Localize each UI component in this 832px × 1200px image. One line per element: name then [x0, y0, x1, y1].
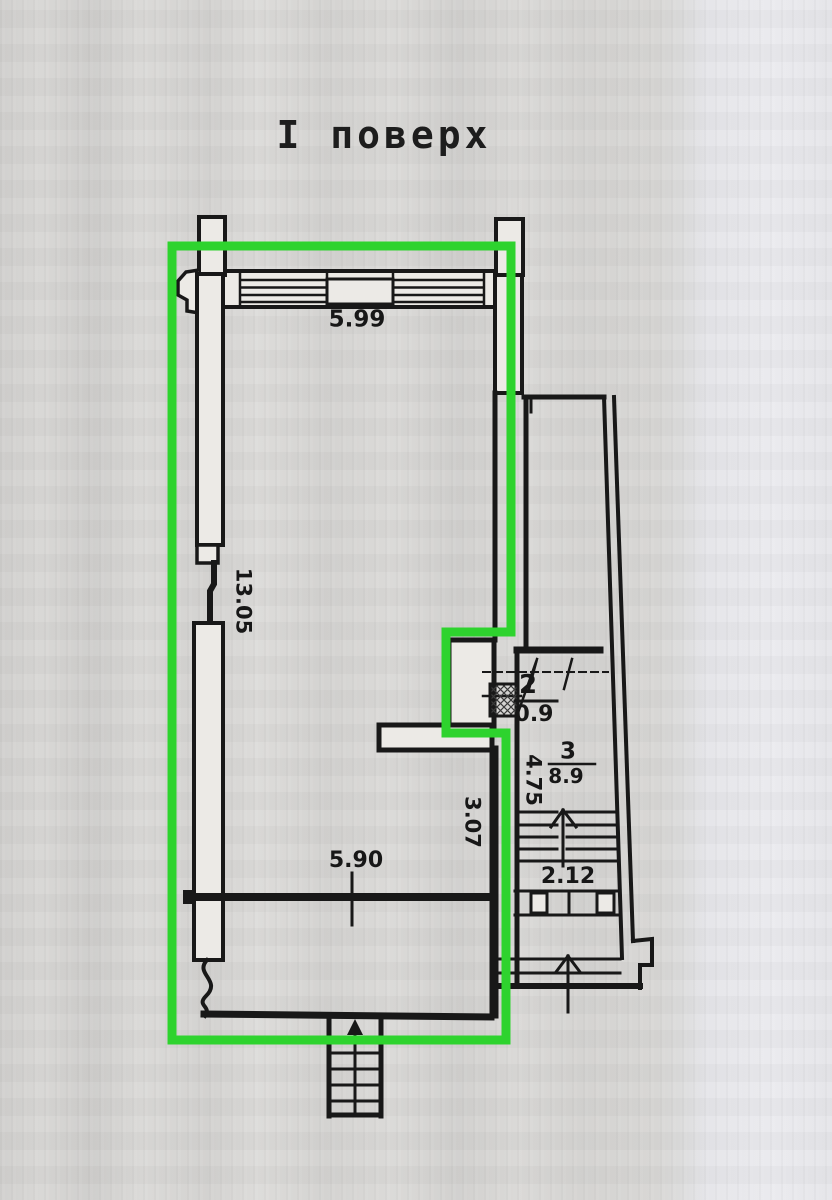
annex-right-wall-inner: [604, 397, 622, 958]
dim-left-wall-height: 13.05: [233, 568, 254, 634]
dim-hall-width: 5.90: [329, 850, 383, 872]
dim-right-wall-height: 3.07: [462, 796, 483, 848]
room-2-area: 0.9: [515, 704, 554, 726]
vestibule-room: [449, 640, 494, 727]
scanned-floor-plan-page: І поверх: [0, 0, 832, 1200]
stair-treads-upper: [517, 812, 616, 861]
porch-steps: [331, 1036, 379, 1116]
left-wall-lower: [194, 623, 223, 960]
room-3-area: 8.9: [548, 766, 583, 786]
room-3-number: 3: [560, 741, 576, 764]
dim-stair-depth: 4.75: [523, 754, 544, 806]
walls-group: [178, 217, 652, 1116]
landing-stub-left: [531, 893, 547, 913]
left-wall-break: [203, 960, 211, 1016]
left-wall-upper: [197, 274, 223, 545]
floor-plan-drawing: [0, 0, 832, 1200]
left-wall-narrow: [210, 563, 214, 623]
landing-stub-right: [597, 893, 614, 913]
annex-corner-jut: [633, 939, 652, 988]
hall-partition-end-block: [183, 890, 196, 904]
entrance-arrow-main: [347, 1019, 363, 1035]
bottom-wall: [204, 1014, 491, 1017]
window-pier: [327, 279, 393, 304]
dim-top-wall-width: 5.99: [329, 309, 386, 332]
room-2-number: 2: [519, 672, 537, 698]
dim-stair-width: 2.12: [541, 866, 595, 888]
